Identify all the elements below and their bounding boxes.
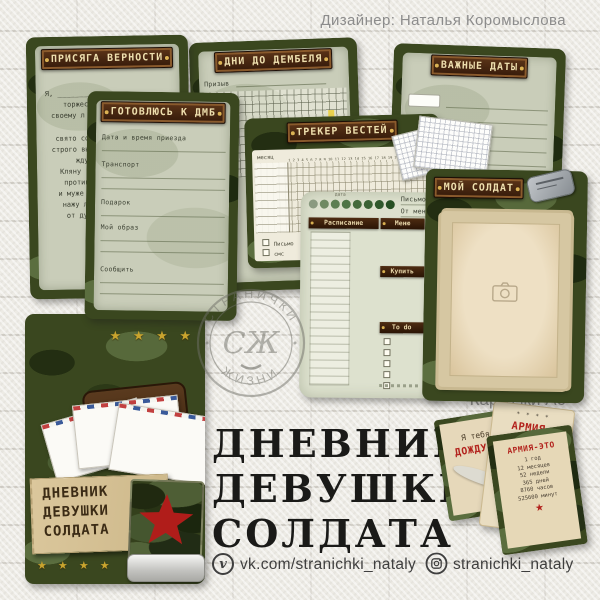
gold-stars-bottom: ★ ★ ★ ★ bbox=[37, 559, 114, 572]
cover-card: ★ ★ ★ ★ ДНЕВНИК ДЕВУШКИ СОЛДАТА ★ ★ ★ ★ bbox=[25, 314, 205, 584]
stamp-arc-top: СТРАНИЧКИ bbox=[201, 287, 302, 325]
schedule-column bbox=[309, 231, 350, 385]
torn-photo-frame bbox=[438, 211, 571, 389]
card-title: МОЙ СОЛДАТ bbox=[444, 182, 514, 194]
stamp-monogram: СЖ bbox=[223, 326, 281, 361]
card-title: ТРЕКЕР ВЕСТЕЙ bbox=[296, 125, 388, 138]
photo-placeholder bbox=[449, 222, 560, 378]
card-title: ПРИСЯГА ВЕРНОСТИ bbox=[51, 52, 164, 65]
menu-banner: Меню bbox=[381, 218, 425, 229]
red-star bbox=[137, 493, 195, 549]
vk-icon: v bbox=[212, 553, 234, 575]
news-tracker-plaque: ТРЕКЕР ВЕСТЕЙ bbox=[286, 120, 398, 144]
date-box bbox=[408, 94, 440, 108]
small-caption-dashes bbox=[379, 384, 419, 387]
month-column-header: месяц bbox=[257, 155, 274, 162]
card-title: ГОТОВЛЮСЬ К ДМБ bbox=[111, 106, 216, 118]
instagram-icon bbox=[425, 552, 448, 575]
camera-icon bbox=[492, 282, 518, 302]
todo-banner: To do bbox=[380, 322, 424, 333]
schedule-banner: Расписание bbox=[309, 217, 379, 229]
buy-banner: Купить bbox=[380, 266, 424, 277]
metal-plate bbox=[127, 554, 205, 582]
month-column bbox=[254, 162, 290, 233]
important-dates-plaque: ВАЖНЫЕ ДАТЫ bbox=[430, 54, 528, 78]
envelope-graphic bbox=[413, 116, 493, 177]
dog-tag bbox=[525, 168, 576, 204]
date-dots bbox=[309, 199, 395, 209]
prep-fields: Дата и время приезда Транспорт Подарок М… bbox=[100, 133, 226, 309]
legend-checkbox bbox=[262, 249, 269, 256]
oath-plaque: ПРИСЯГА ВЕРНОСТИ bbox=[41, 47, 174, 70]
gold-stars-top: ★ ★ ★ ★ bbox=[110, 328, 195, 344]
draft-label: Призыв bbox=[204, 80, 230, 90]
legend-label: смс bbox=[274, 252, 284, 258]
card-title: ДНИ ДО ДЕМБЕЛЯ bbox=[224, 53, 323, 67]
date-label: дата bbox=[335, 193, 346, 198]
stranichki-zhizni-stamp: СТРАНИЧКИ ЖИЗНИ СЖ bbox=[195, 287, 307, 399]
svg-text:СТРАНИЧКИ: СТРАНИЧКИ bbox=[201, 287, 302, 325]
card-my-soldier: МОЙ СОЛДАТ bbox=[422, 169, 588, 404]
my-soldier-plaque: МОЙ СОЛДАТ bbox=[434, 177, 525, 200]
designer-credit: Дизайнер: Наталья Коромыслова bbox=[320, 12, 566, 29]
promo-poster: Дизайнер: Наталья Коромыслова ДНИ ДО ДЕМ… bbox=[0, 0, 600, 600]
prep-dmb-plaque: ГОТОВЛЮСЬ К ДМБ bbox=[101, 101, 227, 124]
vk-handle: vk.com/stranichki_nataly bbox=[240, 556, 416, 574]
instagram-handle: stranichki_nataly bbox=[453, 556, 574, 574]
days-to-demob-plaque: ДНИ ДО ДЕМБЕЛЯ bbox=[214, 48, 333, 73]
a6-card-army-is: АРМИЯ-ЭТО 1 год 12 месяцев 52 недели 365… bbox=[486, 425, 588, 556]
todo-checkboxes bbox=[383, 338, 390, 389]
card-title: ВАЖНЫЕ ДАТЫ bbox=[441, 60, 519, 74]
